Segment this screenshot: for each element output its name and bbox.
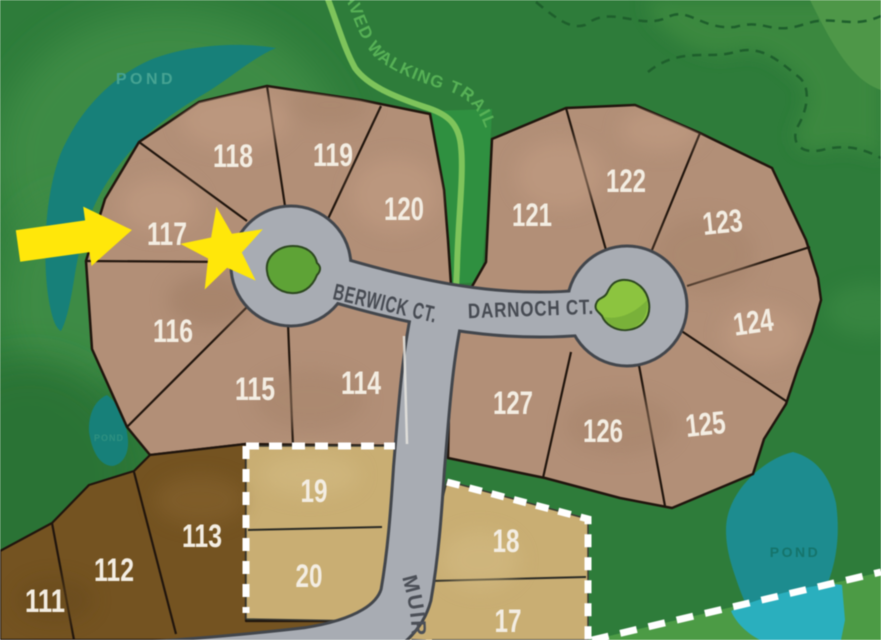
svg-text:117: 117 bbox=[147, 216, 187, 252]
svg-text:121: 121 bbox=[512, 197, 552, 233]
svg-text:DARNOCH CT.: DARNOCH CT. bbox=[468, 296, 595, 323]
svg-text:126: 126 bbox=[583, 413, 623, 449]
svg-text:123: 123 bbox=[701, 202, 745, 242]
svg-text:118: 118 bbox=[213, 138, 253, 174]
svg-text:127: 127 bbox=[493, 385, 533, 421]
svg-text:112: 112 bbox=[94, 552, 134, 588]
svg-text:113: 113 bbox=[182, 518, 222, 554]
svg-text:116: 116 bbox=[153, 313, 193, 349]
svg-text:124: 124 bbox=[731, 301, 776, 342]
svg-text:POND: POND bbox=[770, 544, 820, 560]
svg-text:122: 122 bbox=[606, 163, 646, 199]
svg-text:20: 20 bbox=[296, 558, 323, 594]
svg-text:19: 19 bbox=[301, 473, 328, 509]
svg-text:114: 114 bbox=[341, 365, 381, 401]
svg-text:POND: POND bbox=[94, 433, 124, 443]
svg-text:17: 17 bbox=[495, 603, 522, 639]
svg-text:119: 119 bbox=[313, 137, 353, 173]
svg-text:120: 120 bbox=[384, 191, 424, 227]
svg-text:18: 18 bbox=[493, 523, 520, 559]
svg-text:POND: POND bbox=[116, 71, 176, 88]
svg-text:125: 125 bbox=[684, 404, 728, 444]
svg-text:115: 115 bbox=[235, 371, 275, 407]
svg-text:111: 111 bbox=[25, 583, 65, 619]
